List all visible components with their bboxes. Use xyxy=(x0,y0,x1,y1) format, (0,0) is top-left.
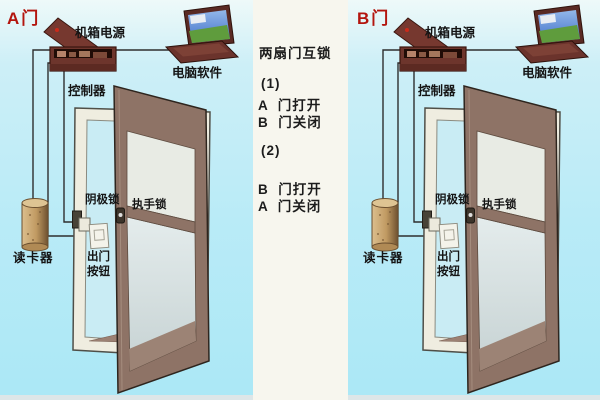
label-card-reader: 读卡器 xyxy=(363,251,404,265)
label-card-reader: 读卡器 xyxy=(13,251,54,265)
label-door-a: A门 xyxy=(7,9,40,29)
label-cathode-lock: 阴极锁 xyxy=(85,194,120,207)
door-b-illustration xyxy=(350,0,600,400)
case2-line2: A 门关闭 xyxy=(258,195,321,215)
label-computer-software: 电脑软件 xyxy=(172,66,222,80)
label-exit-line1: 出门 xyxy=(87,251,110,263)
label-exit-button: 出门按钮 xyxy=(437,250,460,280)
label-handle-lock: 执手锁 xyxy=(482,199,517,212)
interlock-title: 两扇门互锁 xyxy=(259,42,332,62)
label-power-supply: 机箱电源 xyxy=(425,26,475,40)
interlock-description: 两扇门互锁 (1) A 门打开 B 门关闭 (2) B 门打开 A 门关闭 xyxy=(253,0,348,400)
door-a-illustration xyxy=(0,0,255,400)
label-power-supply: 机箱电源 xyxy=(75,26,125,40)
case1-number: (1) xyxy=(261,76,281,91)
interlock-diagram: A门 机箱电源 电脑软件 控制器 阴极锁 执手锁 读卡器 出门按钮 两扇门互锁 … xyxy=(0,0,600,400)
panel-door-a: A门 机箱电源 电脑软件 控制器 阴极锁 执手锁 读卡器 出门按钮 xyxy=(0,0,255,400)
panel-door-b: B门 机箱电源 电脑软件 控制器 阴极锁 执手锁 读卡器 出门按钮 xyxy=(350,0,600,400)
label-controller: 控制器 xyxy=(68,84,106,98)
case1-line2: B 门关闭 xyxy=(258,111,322,131)
label-cathode-lock: 阴极锁 xyxy=(435,194,470,207)
label-exit-line2: 按钮 xyxy=(437,266,460,278)
label-exit-line2: 按钮 xyxy=(87,266,110,278)
label-computer-software: 电脑软件 xyxy=(522,66,572,80)
label-controller: 控制器 xyxy=(418,84,456,98)
case2-number: (2) xyxy=(261,143,281,158)
label-door-b: B门 xyxy=(357,9,390,29)
label-exit-line1: 出门 xyxy=(437,251,460,263)
label-handle-lock: 执手锁 xyxy=(132,199,167,212)
label-exit-button: 出门按钮 xyxy=(87,250,110,280)
